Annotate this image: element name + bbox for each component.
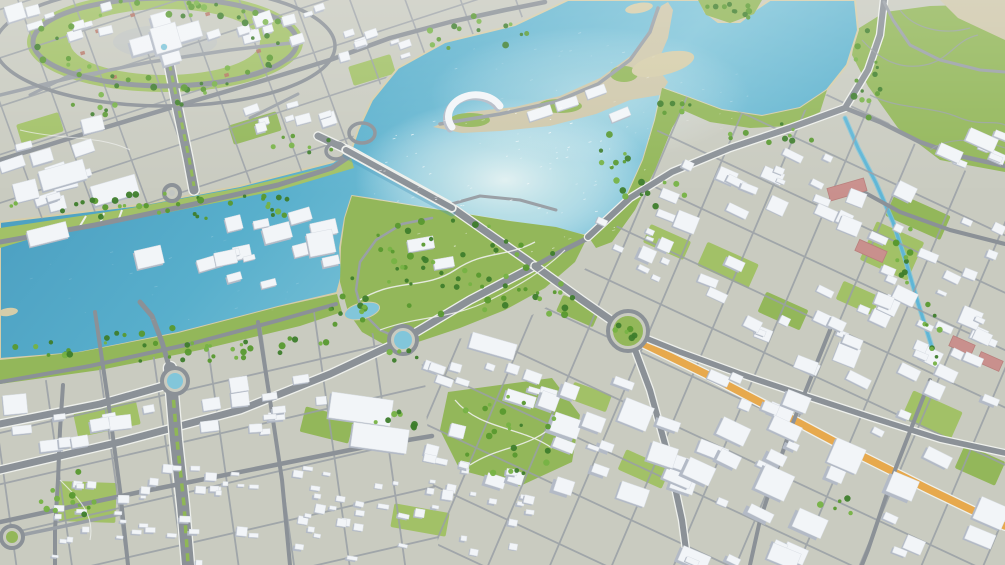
city-3d-render: [0, 0, 1005, 565]
map-canvas[interactable]: [0, 0, 1005, 565]
